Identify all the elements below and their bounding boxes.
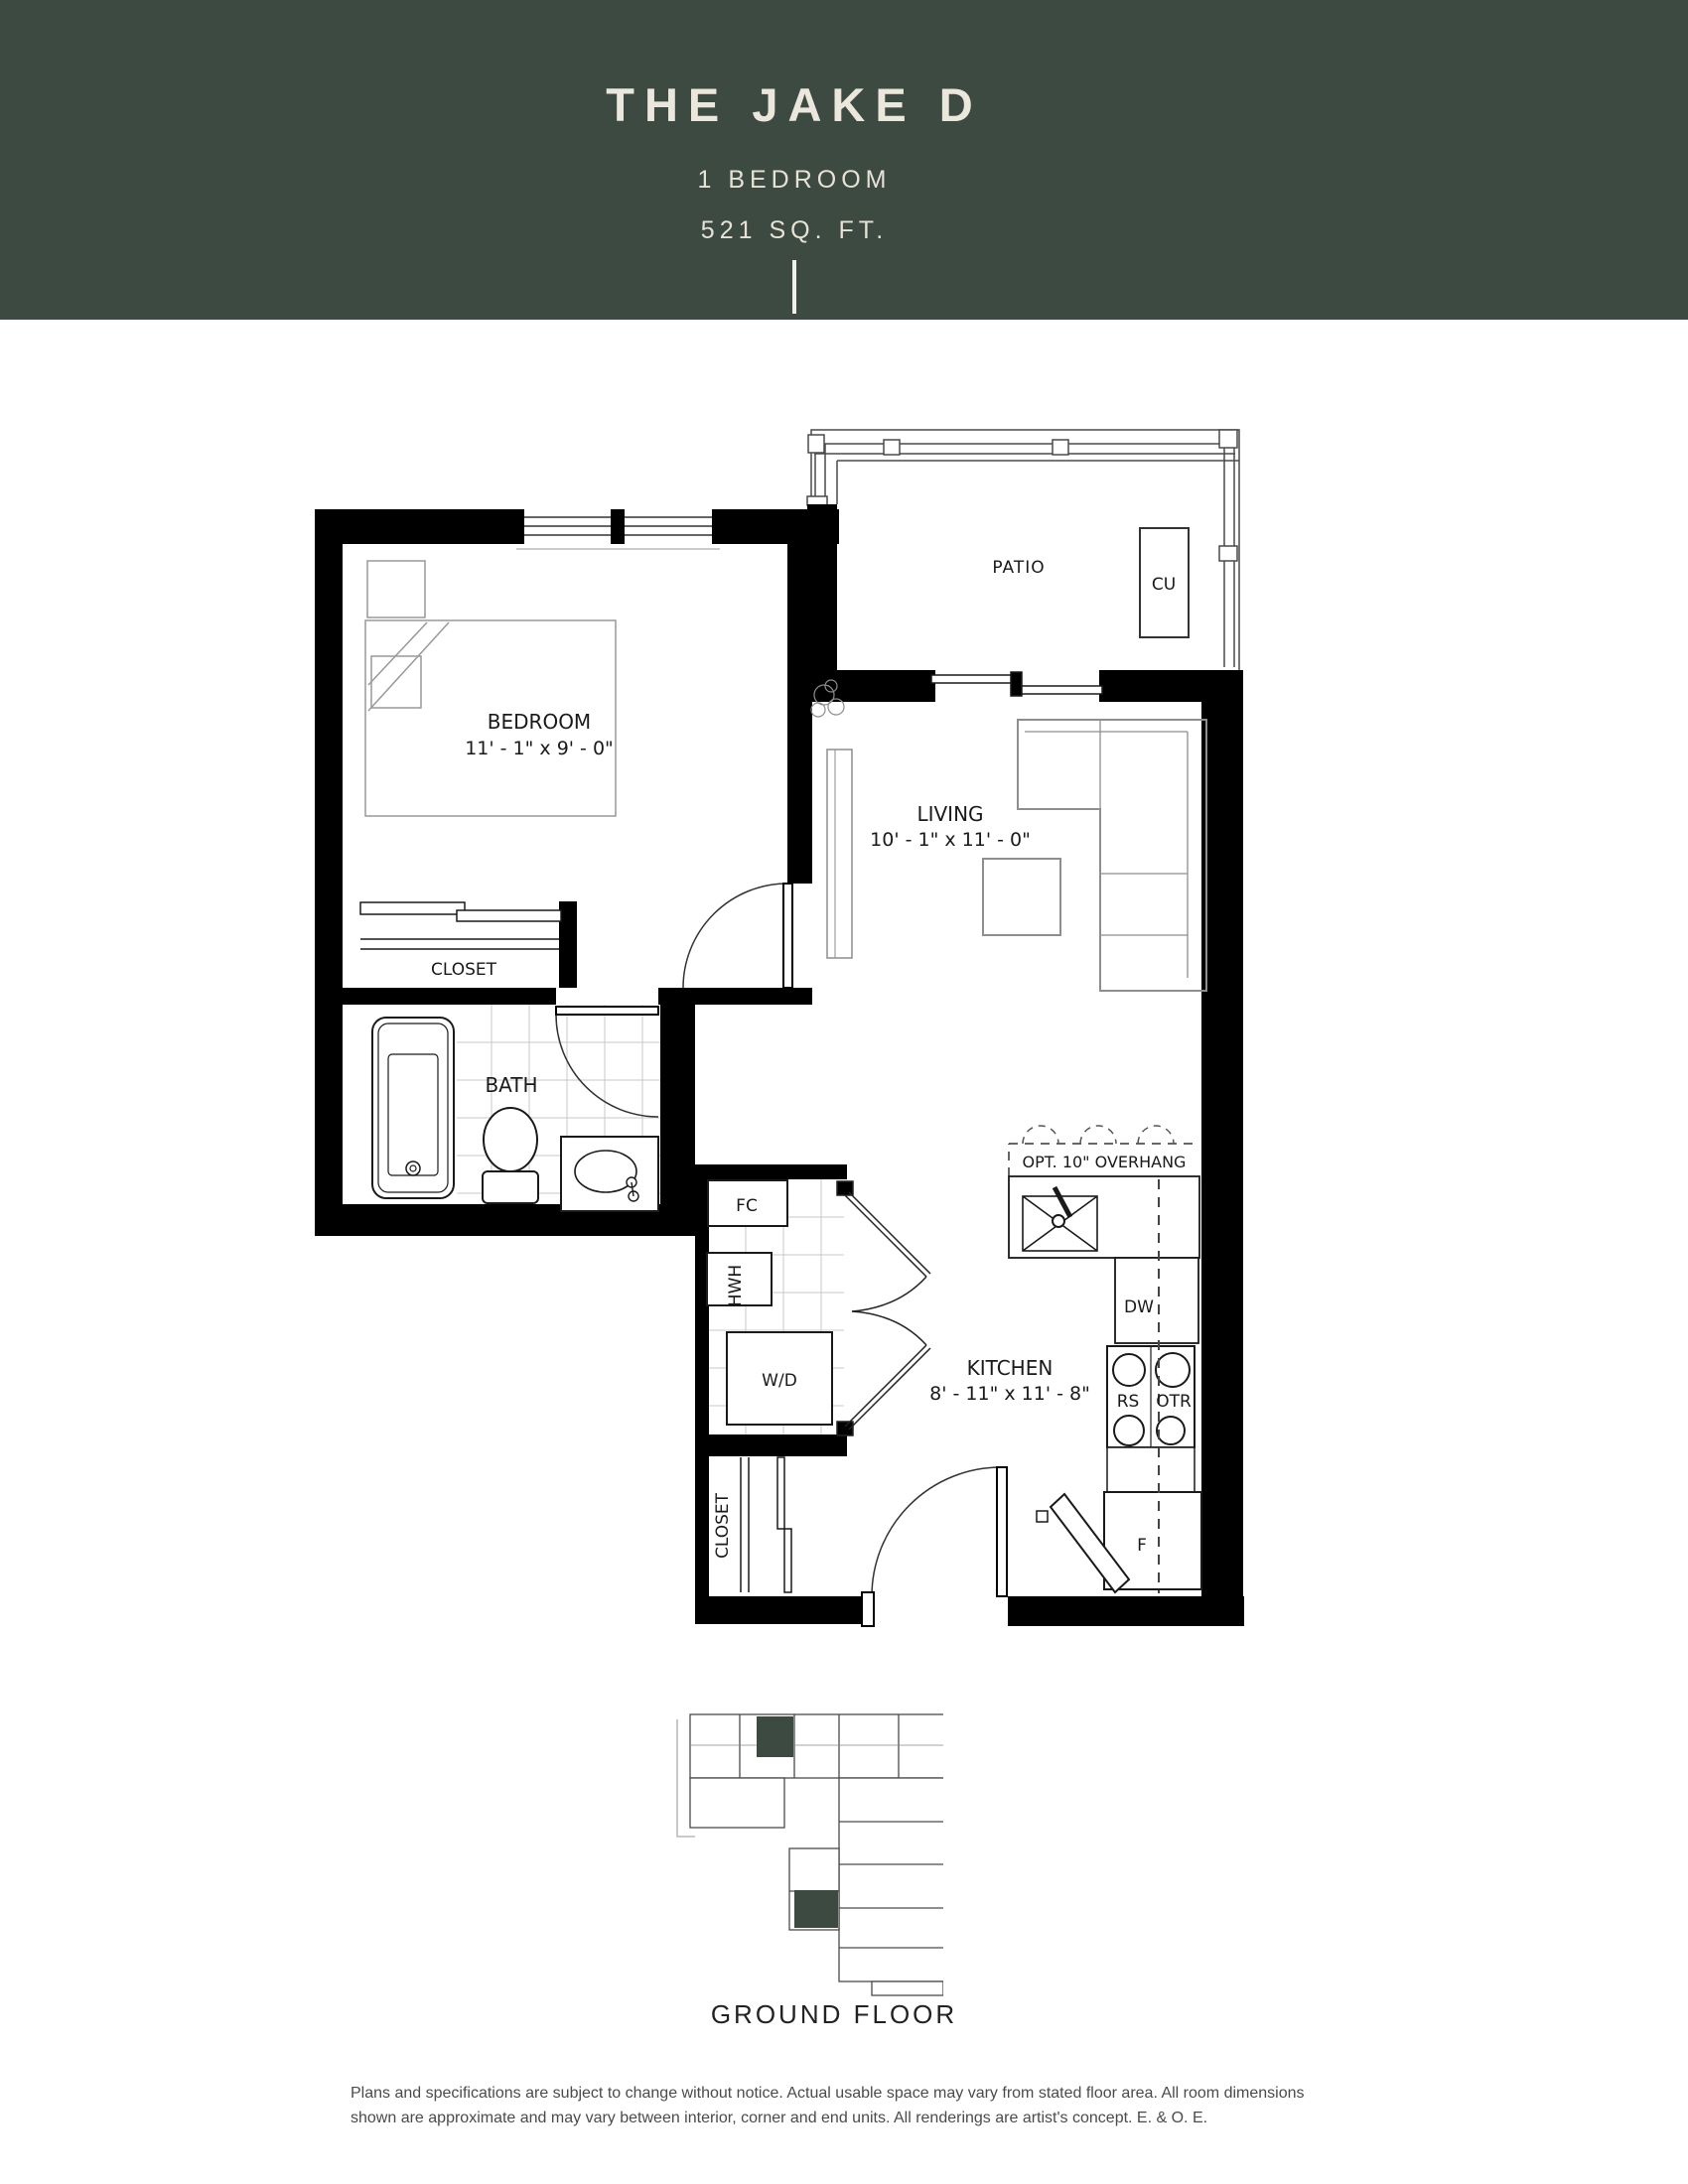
- rail-post: [1053, 440, 1068, 455]
- fridge: [1037, 1492, 1201, 1592]
- page-area: 521 SQ. FT.: [298, 216, 1291, 245]
- entry-closet: [741, 1457, 791, 1592]
- rs-label: RS: [1117, 1392, 1140, 1412]
- disclaimer-line-1: Plans and specifications are subject to …: [351, 2081, 1363, 2106]
- keyplan-top-wing: [690, 1714, 943, 1778]
- patio-sliding-door: [931, 672, 1102, 696]
- door-swing-arc: [683, 884, 787, 988]
- bedroom-window: [516, 509, 720, 549]
- keyplan-bottom-stub: [872, 1981, 943, 1995]
- header-text-block: THE JAKE D 1 BEDROOM 521 SQ. FT.: [298, 0, 1291, 245]
- vanity-sink: [561, 1137, 658, 1211]
- sectional-sofa: [1018, 720, 1206, 991]
- bedroom-closet: [360, 902, 561, 949]
- patio-railing: [814, 444, 1235, 454]
- living-dims: 10' - 1" x 11' - 0": [870, 829, 1031, 851]
- bathroom-fixtures: [372, 1007, 658, 1211]
- keyplan-right-wing: [839, 1778, 943, 1981]
- living-label: LIVING: [916, 802, 983, 826]
- hwh-label: HWH: [726, 1265, 746, 1306]
- bifold-leaf: [845, 1345, 930, 1430]
- rail-post: [884, 440, 900, 455]
- wd-label: W/D: [762, 1371, 797, 1391]
- disclaimer-line-2: shown are approximate and may vary betwe…: [351, 2106, 1363, 2130]
- closet-slider-panel: [457, 910, 561, 921]
- floorplan-page: THE JAKE D 1 BEDROOM 521 SQ. FT.: [0, 0, 1688, 2184]
- bedroom-closet-label: CLOSET: [431, 960, 497, 980]
- patio-deck-edge: [837, 461, 1239, 504]
- bedroom-furniture: [365, 561, 616, 816]
- page-title: THE JAKE D: [298, 77, 1291, 132]
- keyplan-highlighted-unit: [794, 1890, 838, 1928]
- rail-post: [807, 496, 827, 505]
- kitchen-dims: 8' - 11" x 11' - 8": [929, 1383, 1090, 1405]
- door-swing-arc: [556, 1015, 658, 1117]
- page-subtitle: 1 BEDROOM: [298, 166, 1291, 195]
- dw-label: DW: [1124, 1297, 1154, 1317]
- closet-rod: [360, 939, 559, 949]
- kitchen-label: KITCHEN: [967, 1356, 1054, 1380]
- bedroom-dims: 11' - 1" x 9' - 0": [465, 738, 614, 759]
- bed-fold-lines: [368, 622, 449, 711]
- closet-rod: [741, 1457, 749, 1592]
- counter-section: [1107, 1447, 1195, 1492]
- door-leaf: [997, 1467, 1007, 1596]
- bath-label: BATH: [485, 1073, 537, 1097]
- rail-post: [1219, 546, 1237, 561]
- closet-slider-panel: [784, 1529, 791, 1592]
- fc-label: FC: [736, 1196, 758, 1216]
- coffee-table: [983, 859, 1060, 935]
- bifold-leaf: [845, 1192, 930, 1277]
- overhang-label: OPT. 10" OVERHANG: [1023, 1153, 1187, 1171]
- rail-post: [1219, 430, 1237, 448]
- header-band: THE JAKE D 1 BEDROOM 521 SQ. FT.: [0, 0, 1688, 320]
- cu-label: CU: [1152, 575, 1176, 595]
- fridge-label: F: [1137, 1536, 1147, 1556]
- bathtub: [372, 1018, 454, 1198]
- header-divider-line: [792, 260, 796, 314]
- keyplan-left-ext: [690, 1778, 784, 1828]
- door-jamb: [862, 1592, 874, 1626]
- entry-door: [862, 1467, 1007, 1626]
- toilet: [483, 1108, 538, 1203]
- keyplan-caption: GROUND FLOOR: [298, 1999, 1370, 2030]
- door-swing-arc: [872, 1467, 1001, 1596]
- entry-closet-label: CLOSET: [713, 1492, 733, 1559]
- bedroom-door: [683, 884, 792, 988]
- floorplan-drawing: BEDROOM 11' - 1" x 9' - 0" LIVING 10' - …: [278, 397, 1271, 1648]
- rail-post: [808, 435, 824, 453]
- keyplan-highlighted-unit: [757, 1716, 793, 1757]
- otr-label: OTR: [1156, 1392, 1192, 1412]
- closet-slider-panel: [777, 1457, 784, 1529]
- door-swing-arc: [852, 1311, 926, 1345]
- door-leaf: [783, 884, 792, 988]
- stool-arcs: [1023, 1126, 1174, 1144]
- media-console: [827, 750, 852, 958]
- disclaimer-text: Plans and specifications are subject to …: [351, 2081, 1363, 2130]
- kitchen-sink: [1023, 1187, 1097, 1251]
- bedroom-label: BEDROOM: [488, 710, 591, 734]
- utility-bifold-doors: [837, 1181, 930, 1435]
- door-leaf: [556, 1007, 658, 1015]
- patio-label: PATIO: [992, 558, 1045, 578]
- window-mullion: [611, 509, 625, 544]
- closet-slider-panel: [360, 902, 465, 914]
- keyplan-drawing: [635, 1673, 943, 2000]
- nightstand: [367, 561, 425, 617]
- bath-door: [556, 1007, 658, 1117]
- door-swing-arc: [852, 1277, 926, 1311]
